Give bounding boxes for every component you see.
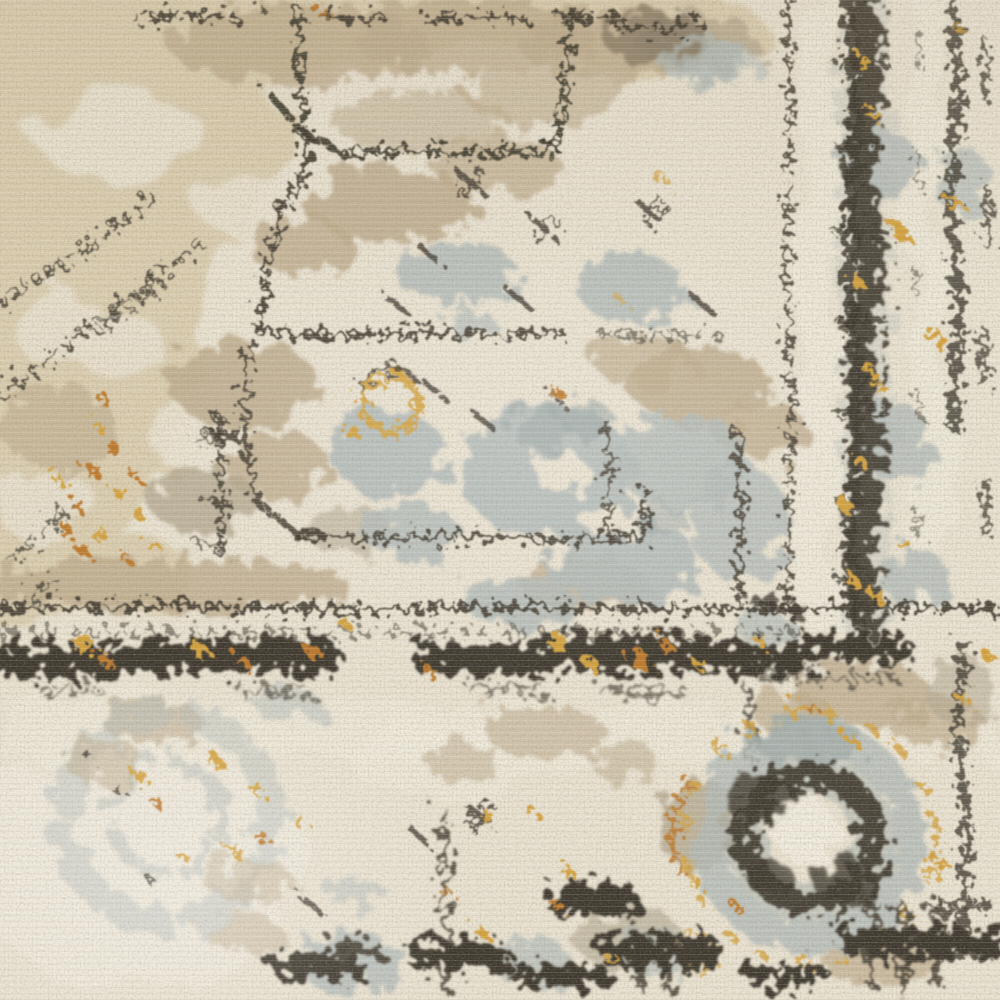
rug-art: [0, 0, 1000, 1000]
photo-grain: [0, 0, 1000, 1000]
screenshot: Close-up of an ivory and beige vintage-d…: [0, 0, 1000, 1000]
rug-closeup-photo: Close-up of an ivory and beige vintage-d…: [0, 0, 1000, 1000]
